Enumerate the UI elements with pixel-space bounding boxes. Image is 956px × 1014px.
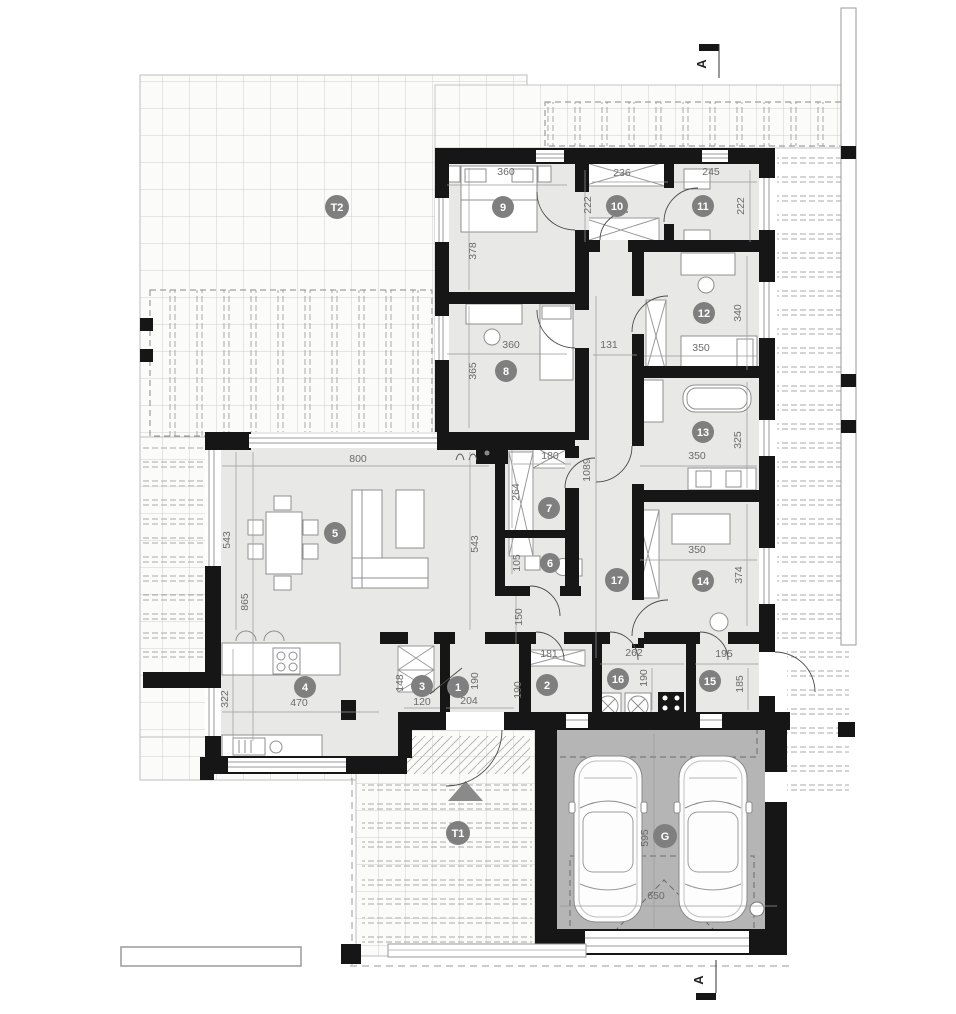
room-badge-5: 5	[324, 522, 346, 544]
living-glazing	[249, 434, 437, 448]
floor-plan-page: 800 543 865 543 470 322 120 148 204 190 …	[0, 0, 956, 1014]
armchair	[710, 613, 728, 631]
terrace-badge-t1: T1	[446, 821, 470, 845]
svg-text:13: 13	[697, 427, 709, 439]
dim-room12-depth: 340	[732, 304, 744, 322]
svg-text:17: 17	[611, 575, 623, 587]
room-badge-10: 10	[606, 195, 628, 217]
washbasin	[525, 556, 540, 570]
terrace-badge-t2: T2	[325, 195, 349, 219]
dim-corridor-length: 1089	[581, 458, 593, 482]
floor-plan-drawing: 800 543 865 543 470 322 120 148 204 190 …	[0, 0, 956, 1014]
dim-room10-depth: 222	[582, 196, 594, 214]
room-badge-7: 7	[538, 497, 560, 519]
room-badge-12: 12	[693, 302, 715, 324]
svg-text:14: 14	[697, 576, 710, 588]
dim-utility-width: 195	[715, 648, 733, 660]
room-badge-13: 13	[692, 421, 714, 443]
dim-corridor-lower: 150	[513, 608, 525, 626]
garage-door-opening	[585, 931, 749, 953]
dim-storage-width: 120	[413, 696, 431, 708]
room-badge-6: 6	[540, 553, 560, 573]
dim-vestibule-depth: 190	[469, 672, 481, 690]
room-badge-8: 8	[495, 360, 517, 382]
dim-storage-depth: 148	[394, 674, 406, 692]
faucet	[270, 741, 282, 753]
dim-room8-depth: 365	[467, 362, 479, 380]
eaves-top	[435, 85, 845, 148]
dim-living-width: 800	[349, 453, 367, 465]
dim-room9-depth: 378	[467, 242, 479, 260]
svg-text:16: 16	[612, 674, 624, 686]
dim-room2-width: 181	[540, 648, 558, 660]
room-badge-15: 15	[699, 670, 721, 692]
dim-garage-width: 650	[647, 890, 665, 902]
front-door-opening	[446, 712, 504, 730]
room-badge-16: 16	[607, 668, 629, 690]
desk	[466, 304, 522, 324]
dim-utility-depth: 185	[734, 675, 746, 693]
svg-text:7: 7	[546, 503, 552, 515]
chair	[698, 277, 714, 293]
dim-room8-width: 360	[502, 339, 520, 351]
dim-wc-depth: 105	[511, 554, 523, 572]
sofa	[352, 558, 428, 588]
dim-room2-depth: 190	[512, 681, 524, 699]
svg-text:12: 12	[698, 308, 710, 320]
washbasin	[696, 471, 711, 487]
svg-text:2: 2	[544, 680, 550, 692]
svg-text:8: 8	[503, 366, 509, 378]
svg-text:1: 1	[455, 682, 461, 694]
room-badge-3: 3	[411, 675, 433, 697]
garage-badge: G	[653, 824, 677, 848]
fireplace	[476, 444, 508, 464]
bed	[672, 514, 730, 544]
dining-table	[266, 512, 302, 574]
side-table	[396, 490, 424, 548]
svg-text:T2: T2	[331, 202, 344, 214]
dim-garage-depth: 595	[639, 829, 651, 847]
dim-bath-depth: 325	[732, 431, 744, 449]
dim-closet-width: 180	[541, 450, 559, 462]
svg-text:6: 6	[547, 558, 553, 570]
dim-room14-width: 350	[688, 544, 706, 556]
dim-room10-width: 236	[613, 167, 631, 179]
svg-text:G: G	[661, 831, 670, 843]
svg-text:11: 11	[697, 201, 709, 213]
nightstand	[538, 166, 551, 182]
dim-room11-width: 245	[702, 166, 720, 178]
chair	[484, 329, 500, 345]
dim-living-side-total: 865	[239, 593, 251, 611]
svg-text:9: 9	[500, 202, 506, 214]
dim-living-depth-right: 543	[469, 535, 481, 553]
room-badge-11: 11	[692, 195, 714, 217]
dim-laundry-width: 262	[625, 647, 643, 659]
dim-closet-depth: 264	[510, 483, 522, 501]
dim-living-depth-left: 543	[221, 531, 233, 549]
dim-kitchen-width: 470	[290, 697, 308, 709]
drain-icon	[750, 902, 764, 916]
svg-text:T1: T1	[452, 828, 465, 840]
dim-bath-width: 350	[688, 450, 706, 462]
svg-text:4: 4	[302, 682, 309, 694]
svg-text:10: 10	[611, 201, 623, 213]
svg-text:3: 3	[419, 681, 425, 693]
room-badge-1: 1	[447, 676, 469, 698]
room-badge-2: 2	[536, 674, 558, 696]
room-badge-9: 9	[492, 196, 514, 218]
dim-room12-width: 350	[692, 342, 710, 354]
boiler-icon	[658, 692, 684, 714]
section-label-bottom: A	[691, 975, 706, 985]
room-badge-14: 14	[692, 570, 714, 592]
room-badge-17: 17	[605, 568, 629, 592]
dim-kitchen-depth: 322	[219, 690, 231, 708]
dim-corridor-width: 131	[600, 339, 618, 351]
dim-room14-depth: 374	[733, 566, 745, 584]
car-right	[674, 756, 752, 922]
car-left	[569, 756, 647, 922]
svg-text:5: 5	[332, 528, 338, 540]
room-badge-4: 4	[294, 676, 316, 698]
dim-room9-width: 360	[497, 166, 515, 178]
bathtub	[683, 385, 751, 412]
kitchen-sink	[233, 738, 265, 755]
section-label-top: A	[694, 59, 709, 69]
flue-icon	[485, 451, 490, 456]
exterior-door-opening	[759, 652, 775, 696]
scale-bar-box	[121, 947, 301, 966]
dim-room11-depth: 222	[735, 197, 747, 215]
washbasin	[726, 471, 741, 487]
svg-text:15: 15	[704, 676, 716, 688]
section-marker-top: A	[694, 44, 719, 78]
desk	[681, 253, 735, 275]
dim-laundry-depth: 190	[638, 669, 650, 687]
